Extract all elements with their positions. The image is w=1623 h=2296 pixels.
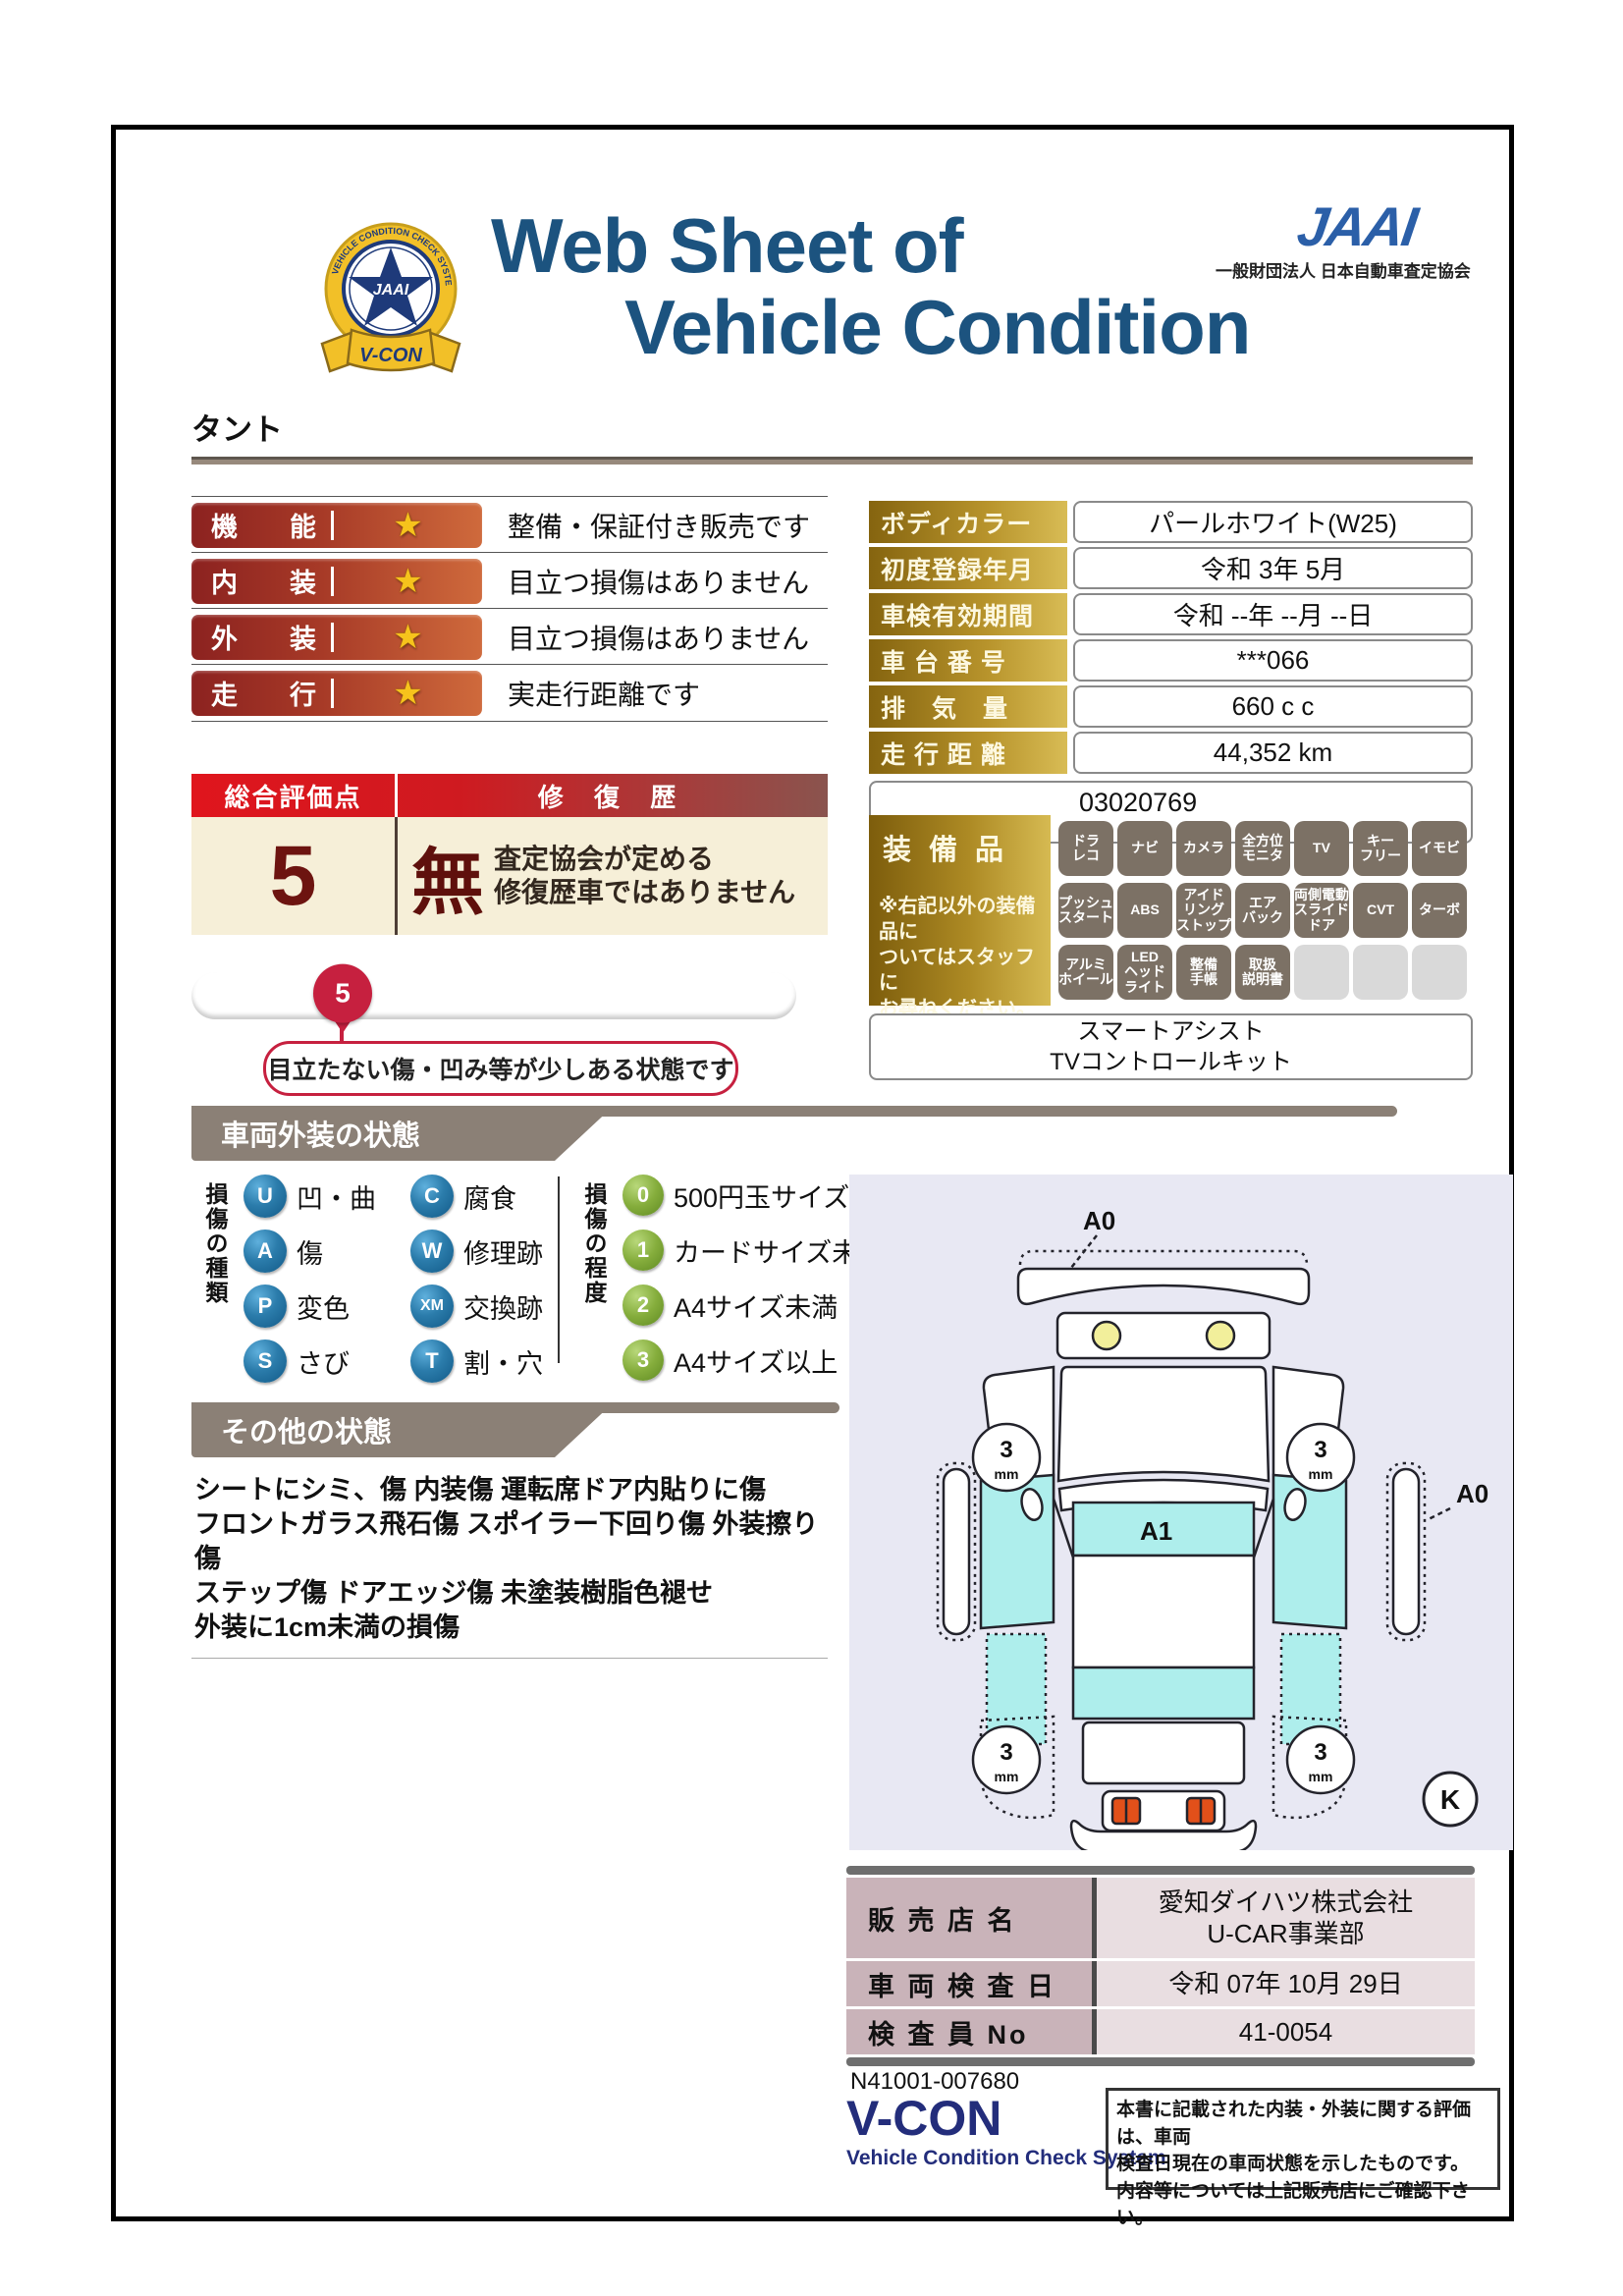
disclaimer-box: 本書に記載された内装・外装に関する評価は、車両 検査日現在の車両状態を示したもの…	[1106, 2088, 1500, 2190]
legend-type-A: A 傷	[243, 1230, 323, 1273]
type-label: 交換跡	[463, 1287, 543, 1326]
repair-history-value: 無	[411, 824, 484, 929]
dealer-value: 令和 07年 10月 29日	[1097, 1961, 1475, 2006]
equipment-badge-tv: TV	[1294, 821, 1349, 876]
vcon-badge-logo: JAAI VEHICLE CONDITION CHECK SYSTEM V-CO…	[302, 214, 479, 393]
rating-label: 内 装	[191, 562, 329, 600]
equipment-badges-grid: ドラ レコ ナビ カメラ 全方位 モニタ TV キー フリー イモビ プッシュ …	[1058, 821, 1471, 1006]
spec-value: 660 c c	[1073, 685, 1473, 728]
repair-history-note: 査定協会が定める 修復歴車ではありません	[494, 843, 795, 908]
overall-score-header: 総合評価点 修 復 歴	[191, 774, 828, 817]
vcon-wordmark: V-CON	[846, 2090, 1001, 2147]
vehicle-name: タント	[191, 405, 283, 449]
spec-label: 車検有効期間	[869, 593, 1067, 635]
badge-star-text: JAAI	[373, 282, 409, 299]
equipment-badge-dashcam: ドラ レコ	[1058, 821, 1113, 876]
rating-label: 外 装	[191, 618, 329, 656]
dealer-value: 41-0054	[1097, 2009, 1475, 2054]
rating-row-function: 機 能 ★ 整備・保証付き販売です	[191, 496, 828, 553]
type-label: 修理跡	[463, 1232, 543, 1271]
selected-grade-marker: 5	[313, 964, 372, 1023]
sheet-title-line1: Web Sheet of	[491, 201, 963, 291]
other-section-header: その他の状態	[191, 1402, 614, 1457]
spec-label: 排 気 量	[869, 685, 1067, 728]
equipment-badge-navi: ナビ	[1117, 821, 1172, 876]
type-badge-U: U	[243, 1175, 287, 1218]
degree-badge-1: 1	[622, 1230, 664, 1271]
equipment-extra-notes-box: スマートアシスト TVコントロールキット	[869, 1013, 1473, 1080]
equipment-badge-owners-manual: 取扱 説明書	[1235, 945, 1290, 1000]
rating-description: 実走行距離です	[508, 674, 700, 713]
tread-depth-unit-rl: mm	[995, 1769, 1019, 1784]
spec-label: ボディカラー	[869, 501, 1067, 543]
legend-degree-1: 1 カードサイズ未満	[622, 1230, 885, 1271]
rating-label: 走 行	[191, 674, 329, 712]
legend-type-XM: XM 交換跡	[410, 1285, 543, 1328]
spec-value: 令和 --年 --月 --日	[1073, 593, 1473, 635]
equipment-badge-service-record: 整備 手帳	[1176, 945, 1231, 1000]
dealer-table-top-bar	[846, 1866, 1475, 1875]
jaai-logo: JAAI	[1293, 194, 1420, 258]
equipment-badge-empty	[1294, 945, 1349, 1000]
equipment-badge-immobilizer: イモビ	[1412, 821, 1467, 876]
legend-divider	[558, 1176, 560, 1363]
score-header-label: 総合評価点	[191, 774, 398, 817]
rating-row-mileage: 走 行 ★ 実走行距離です	[191, 664, 828, 722]
legend-degree-2: 2 A4サイズ未満	[622, 1285, 838, 1326]
rating-description: 目立つ損傷はありません	[508, 618, 809, 657]
tread-depth-unit-rr: mm	[1309, 1769, 1333, 1784]
key-marker-label: K	[1440, 1784, 1460, 1815]
overall-score-body: 5 無 査定協会が定める 修復歴車ではありません	[191, 817, 828, 935]
type-label: 変色	[297, 1287, 350, 1326]
equipment-header-cell: 装備品 ※右記以外の装備品に ついてはスタッフに お尋ねください。	[869, 815, 1051, 1006]
spec-value: ***066	[1073, 639, 1473, 682]
equipment-badge-camera: カメラ	[1176, 821, 1231, 876]
dealer-row-inspection-date: 車 両 検 査 日 令和 07年 10月 29日	[846, 1961, 1475, 2006]
spec-value: 44,352 km	[1073, 732, 1473, 774]
front-bumper-damage-label: A0	[1083, 1206, 1115, 1235]
type-label: 腐食	[463, 1177, 516, 1216]
type-label: 凹・曲	[297, 1177, 376, 1216]
equipment-header: 装備品	[869, 815, 1051, 868]
spec-label: 車 台 番 号	[869, 639, 1067, 682]
equipment-badge-abs: ABS	[1117, 883, 1172, 938]
degree-badge-0: 0	[622, 1175, 664, 1216]
spec-label: 初度登録年月	[869, 547, 1067, 589]
legend-degree-3: 3 A4サイズ以上	[622, 1339, 838, 1381]
degree-label: A4サイズ未満	[674, 1286, 838, 1325]
tread-depth-value-fl: 3	[1000, 1437, 1012, 1463]
other-condition-text: シートにシミ、傷 内装傷 運転席ドア内貼りに傷 フロントガラス飛石傷 スポイラー…	[194, 1473, 833, 1645]
header-divider	[191, 457, 1473, 465]
type-label: 割・穴	[463, 1342, 543, 1381]
roof-damage-label: A1	[1140, 1516, 1172, 1546]
spec-row-displacement: 排 気 量 660 c c	[869, 685, 1473, 728]
spec-value: 令和 3年 5月	[1073, 547, 1473, 589]
type-label: さび	[297, 1342, 350, 1381]
jaai-subtitle: 一般財団法人 日本自動車査定協会	[1216, 257, 1471, 282]
type-badge-A: A	[243, 1230, 287, 1273]
spec-row-body-color: ボディカラー パールホワイト(W25)	[869, 501, 1473, 543]
tread-depth-unit-fr: mm	[1309, 1466, 1333, 1482]
equipment-badge-alloy-wheels: アルミ ホイール	[1058, 945, 1113, 1000]
exterior-section-title: 車両外装の状態	[221, 1113, 420, 1154]
overall-score-box: 総合評価点 修 復 歴 5 無 査定協会が定める 修復歴車ではありません	[191, 774, 828, 935]
tread-depth-unit-fl: mm	[995, 1466, 1019, 1482]
spec-label: 走 行 距 離	[869, 732, 1067, 774]
damage-type-axis-label: 損傷の種類	[198, 1182, 232, 1369]
dealer-row-inspector-no: 検 査 員 No 41-0054	[846, 2009, 1475, 2054]
type-badge-S: S	[243, 1339, 287, 1383]
exterior-section-header: 車両外装の状態	[191, 1106, 614, 1161]
equipment-badge-power-slide-doors: 両側電動 スライド ドア	[1294, 883, 1349, 938]
grade-5-selected: 5	[312, 972, 373, 1019]
grade-note-bubble: 目立たない傷・凹み等が少しある状態です	[263, 1041, 738, 1096]
type-badge-C: C	[410, 1175, 454, 1218]
tread-depth-value-fr: 3	[1314, 1437, 1326, 1463]
grade-R: R	[735, 972, 796, 1019]
other-section-title: その他の状態	[221, 1409, 392, 1450]
equipment-badge-push-start: プッシュ スタート	[1058, 883, 1113, 938]
tread-depth-value-rl: 3	[1000, 1739, 1012, 1766]
rating-bar: 内 装 ★	[191, 559, 482, 604]
dealer-label: 車 両 検 査 日	[846, 1961, 1092, 2006]
grade-scale: S 6 5 4.5 4 3.5 3 2 1 R	[191, 972, 796, 1019]
type-badge-W: W	[410, 1230, 454, 1273]
tread-depth-value-rr: 3	[1314, 1739, 1326, 1766]
star-icon: ★	[334, 562, 482, 601]
degree-badge-2: 2	[622, 1285, 664, 1326]
left-column-bottom-rule	[191, 1658, 828, 1659]
equipment-badge-turbo: ターボ	[1412, 883, 1467, 938]
degree-label: A4サイズ以上	[674, 1341, 838, 1380]
rating-description: 目立つ損傷はありません	[508, 562, 809, 601]
dealer-table-bottom-bar	[846, 2057, 1475, 2066]
rating-bar: 外 装 ★	[191, 615, 482, 660]
legend-type-P: P 変色	[243, 1285, 350, 1328]
equipment-badge-around-monitor: 全方位 モニタ	[1235, 821, 1290, 876]
degree-badge-3: 3	[622, 1339, 664, 1381]
star-icon: ★	[334, 618, 482, 657]
equipment-badge-idling-stop: アイド リング ストップ	[1176, 883, 1231, 938]
type-badge-XM: XM	[410, 1285, 454, 1328]
overall-score-value: 5	[191, 817, 398, 935]
rating-bar: 走 行 ★	[191, 671, 482, 716]
rating-label: 機 能	[191, 506, 329, 544]
star-icon: ★	[334, 506, 482, 545]
legend-type-T: T 割・穴	[410, 1339, 543, 1383]
vehicle-damage-diagram: A0	[849, 1175, 1513, 1850]
car-top-view: A0	[849, 1175, 1513, 1850]
dealer-label: 販 売 店 名	[846, 1878, 1092, 1958]
legend-type-S: S さび	[243, 1339, 350, 1383]
star-icon: ★	[334, 674, 482, 713]
rating-bar: 機 能 ★	[191, 503, 482, 548]
equipment-badge-keyfree: キー フリー	[1353, 821, 1408, 876]
rating-description: 整備・保証付き販売です	[508, 506, 810, 545]
spec-row-mileage: 走 行 距 離 44,352 km	[869, 732, 1473, 774]
inspection-number: 03020769	[1079, 788, 1197, 818]
legend-type-C: C 腐食	[410, 1175, 516, 1218]
equipment-badge-airbag: エア バック	[1235, 883, 1290, 938]
equipment-badge-led-headlights: LED ヘッド ライト	[1117, 945, 1172, 1000]
sheet-title-line2: Vehicle Condition	[624, 283, 1250, 372]
legend-type-W: W 修理跡	[410, 1230, 543, 1273]
rating-row-exterior: 外 装 ★ 目立つ損傷はありません	[191, 608, 828, 665]
spec-row-first-registration: 初度登録年月 令和 3年 5月	[869, 547, 1473, 589]
damage-degree-axis-label: 損傷の程度	[577, 1182, 611, 1369]
equipment-badge-cvt: CVT	[1353, 883, 1408, 938]
spec-row-chassis-number: 車 台 番 号 ***066	[869, 639, 1473, 682]
equipment-badge-empty	[1353, 945, 1408, 1000]
side-sill-damage-label: A0	[1456, 1479, 1488, 1508]
equipment-note: ※右記以外の装備品に ついてはスタッフに お尋ねください。	[869, 868, 1051, 1021]
spec-value: パールホワイト(W25)	[1073, 501, 1473, 543]
vehicle-condition-sheet: JAAI VEHICLE CONDITION CHECK SYSTEM V-CO…	[0, 0, 1623, 2296]
equipment-badge-empty	[1412, 945, 1467, 1000]
repair-history-header: 修 復 歴	[398, 774, 828, 817]
dealer-value: 愛知ダイハツ株式会社 U-CAR事業部	[1097, 1878, 1475, 1958]
type-badge-P: P	[243, 1285, 287, 1328]
type-badge-T: T	[410, 1339, 454, 1383]
spec-row-inspection-validity: 車検有効期間 令和 --年 --月 --日	[869, 593, 1473, 635]
rating-row-interior: 内 装 ★ 目立つ損傷はありません	[191, 552, 828, 609]
dealer-row-shop-name: 販 売 店 名 愛知ダイハツ株式会社 U-CAR事業部	[846, 1878, 1475, 1958]
badge-ribbon-text: V-CON	[359, 345, 422, 366]
dealer-label: 検 査 員 No	[846, 2009, 1092, 2054]
type-label: 傷	[297, 1232, 323, 1271]
legend-type-U: U 凹・曲	[243, 1175, 376, 1218]
